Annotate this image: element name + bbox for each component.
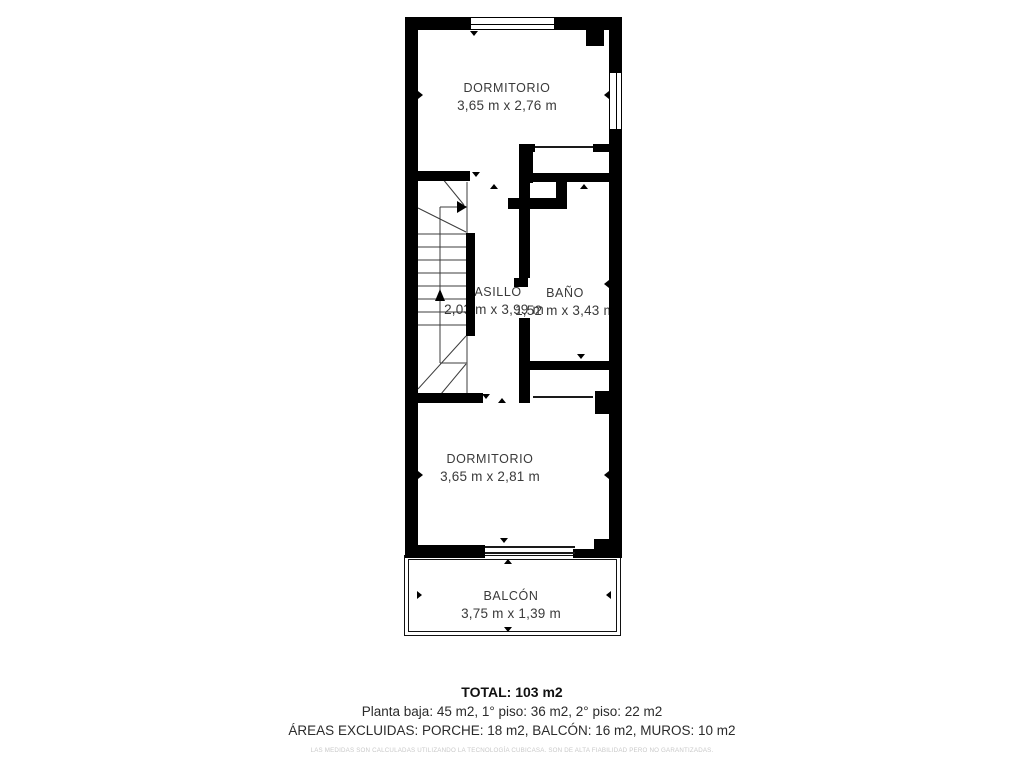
- room-name: BAÑO: [515, 286, 615, 300]
- wardrobe2-front-line: [533, 396, 593, 398]
- opening-marker-bathroom-top: [580, 184, 588, 189]
- wall-outer-left: [405, 17, 418, 558]
- wall-bottom-left: [405, 545, 485, 558]
- wall-bedroom1-bottom-left: [405, 171, 470, 181]
- opening-marker-balcony-right: [606, 591, 611, 599]
- room-label-bedroom-top: DORMITORIO 3,65 m x 2,76 m: [457, 81, 557, 113]
- wall-wardrobe1-stub-right: [593, 144, 609, 152]
- window-pane-line: [616, 73, 617, 129]
- room-name: DORMITORIO: [457, 81, 557, 95]
- opening-marker-bedroom1-door-bottom: [490, 184, 498, 189]
- measurement-disclaimer: LAS MEDIDAS SON CALCULADAS UTILIZANDO LA…: [195, 747, 830, 754]
- window-right: [609, 72, 622, 130]
- window-top: [470, 17, 555, 30]
- wall-stair-side: [466, 233, 475, 336]
- opening-marker-bedroom1-left: [418, 91, 423, 99]
- excluded-areas-text: ÁREAS EXCLUIDAS: PORCHE: 18 m2, BALCÓN: …: [0, 723, 1024, 738]
- wall-hallway-bathroom-upper: [519, 183, 530, 278]
- opening-marker-bedroom1-right: [604, 91, 609, 99]
- wall-column-top-right: [586, 30, 604, 46]
- wall-bedroom1-bathroom-divider: [530, 173, 609, 182]
- room-dimensions: 3,65 m x 2,81 m: [440, 469, 540, 484]
- wall-shower-horizontal: [508, 198, 567, 209]
- balcony-door-line-2: [485, 552, 575, 554]
- wardrobe1-front-line: [535, 146, 593, 148]
- opening-marker-bedroom1-door-top: [472, 172, 480, 177]
- wall-column-bottom-right: [594, 539, 622, 558]
- area-summary: TOTAL: 103 m2 Planta baja: 45 m2, 1° pis…: [0, 684, 1024, 756]
- wall-wardrobe1-stub-left: [519, 144, 535, 152]
- opening-marker-bedroom2-right: [604, 471, 609, 479]
- opening-marker-bathroom-bottom: [577, 354, 585, 359]
- opening-marker-balcony-left: [417, 591, 422, 599]
- balcony-door-line-1: [485, 546, 575, 548]
- wall-bedroom2-top-left: [405, 393, 483, 403]
- room-dimensions: 3,75 m x 1,39 m: [461, 606, 561, 621]
- wall-door-jamb: [514, 278, 528, 287]
- floorplan-page: DORMITORIO 3,65 m x 2,76 m PASILLO 2,03 …: [0, 0, 1024, 768]
- opening-marker-balcony-bottom: [504, 627, 512, 632]
- room-dimensions: 3,65 m x 2,76 m: [457, 98, 557, 113]
- total-area-text: TOTAL: 103 m2: [0, 684, 1024, 700]
- opening-marker-bedroom2-door-bottom: [498, 398, 506, 403]
- wall-hallway-bathroom-lower: [519, 318, 530, 403]
- opening-marker-bathroom-right: [604, 280, 609, 288]
- opening-marker-balcony-door-top: [500, 538, 508, 543]
- room-label-balcony: BALCÓN 3,75 m x 1,39 m: [461, 589, 561, 621]
- wall-column-mid-right: [595, 391, 613, 414]
- opening-marker-bedroom2-door-top: [482, 394, 490, 399]
- window-pane-line: [471, 24, 554, 25]
- opening-marker-window-top: [470, 31, 478, 36]
- floors-area-text: Planta baja: 45 m2, 1° piso: 36 m2, 2° p…: [0, 704, 1024, 719]
- room-name: DORMITORIO: [440, 452, 540, 466]
- room-name: BALCÓN: [461, 589, 561, 603]
- room-label-bathroom: BAÑO 1,52 m x 3,43 m: [515, 286, 615, 318]
- room-dimensions: 1,52 m x 3,43 m: [515, 303, 615, 318]
- opening-marker-balcony-door-bottom: [504, 559, 512, 564]
- opening-marker-bedroom2-left: [418, 471, 423, 479]
- wall-bathroom-bottom: [530, 361, 609, 370]
- room-label-bedroom-bottom: DORMITORIO 3,65 m x 2,81 m: [440, 452, 540, 484]
